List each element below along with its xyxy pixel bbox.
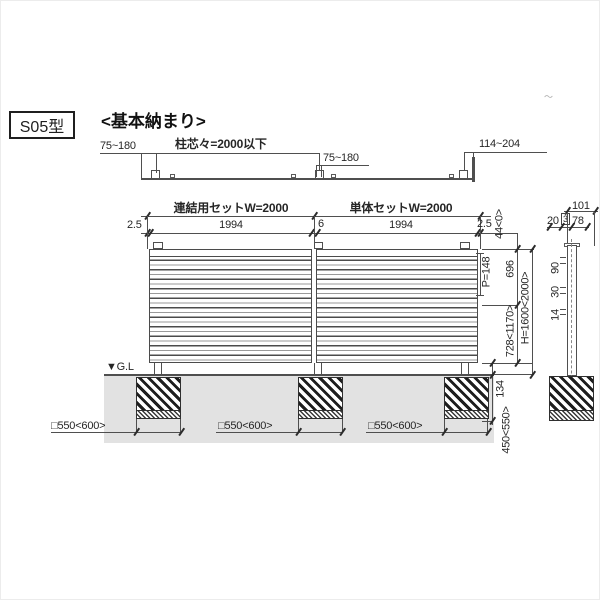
extension-line [594, 212, 595, 246]
dim-label-s2: 30 [551, 286, 562, 298]
dim-label-w-front: 78 [572, 215, 584, 227]
dim-label-s1: 90 [551, 262, 562, 274]
drawing-sheet: S05型 <基本納まり> 〜 75~180 柱芯々=2000以下 75~180 … [0, 0, 600, 600]
section-foundation-block [549, 376, 594, 411]
extension-line [567, 212, 568, 244]
section-view: 101 20 3 78 90 30 14 [1, 1, 599, 599]
dim-line [547, 227, 589, 228]
dim-label-s3: 14 [551, 309, 562, 321]
spacing-tick [560, 257, 566, 258]
section-post [567, 245, 577, 376]
section-foundation-base [549, 411, 594, 421]
tick [584, 223, 590, 231]
